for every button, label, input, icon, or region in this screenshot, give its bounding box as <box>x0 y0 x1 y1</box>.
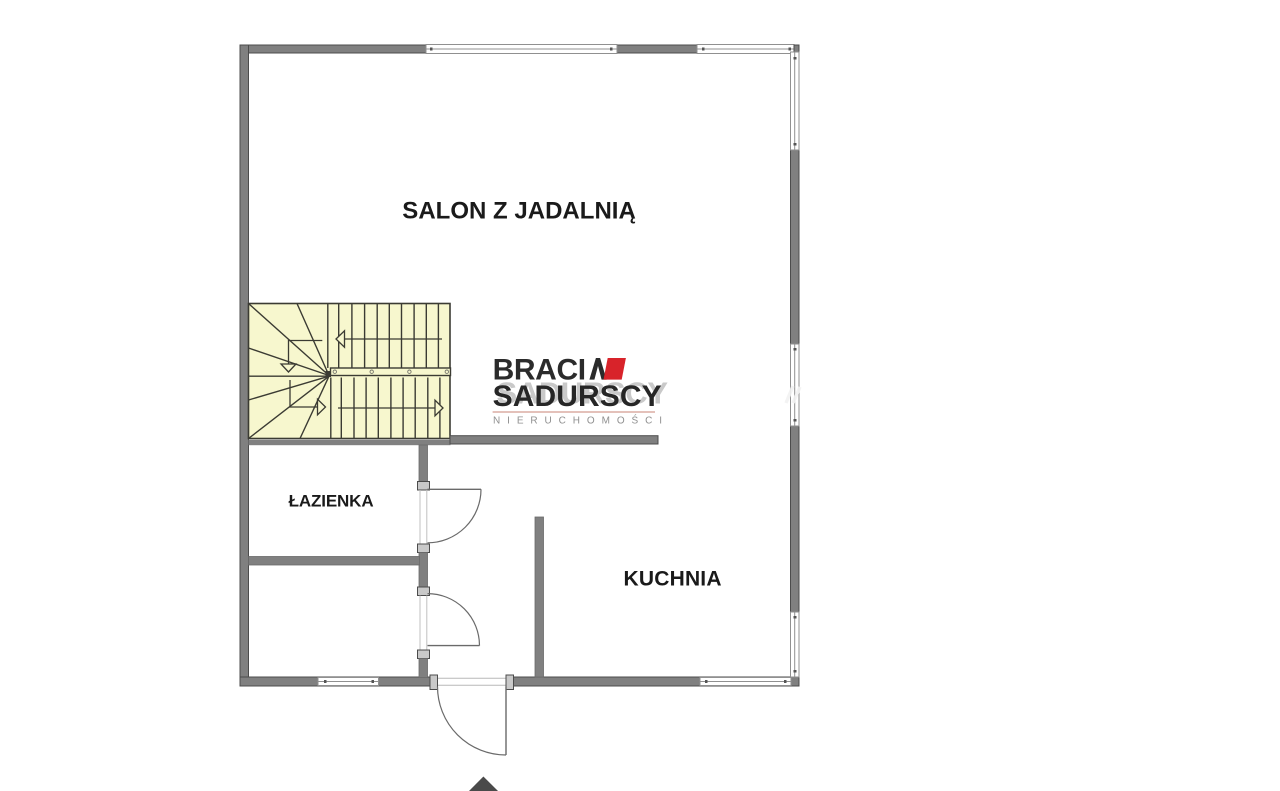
svg-text:NIERUCHOMOŚCI: NIERUCHOMOŚCI <box>493 414 662 427</box>
svg-text:KUCHNIA: KUCHNIA <box>624 568 722 591</box>
svg-text:SADURSCY: SADURSCY <box>493 380 662 413</box>
svg-text:SALON Z JADALNIĄ: SALON Z JADALNIĄ <box>402 198 636 225</box>
svg-text:ŁAZIENKA: ŁAZIENKA <box>289 492 374 511</box>
